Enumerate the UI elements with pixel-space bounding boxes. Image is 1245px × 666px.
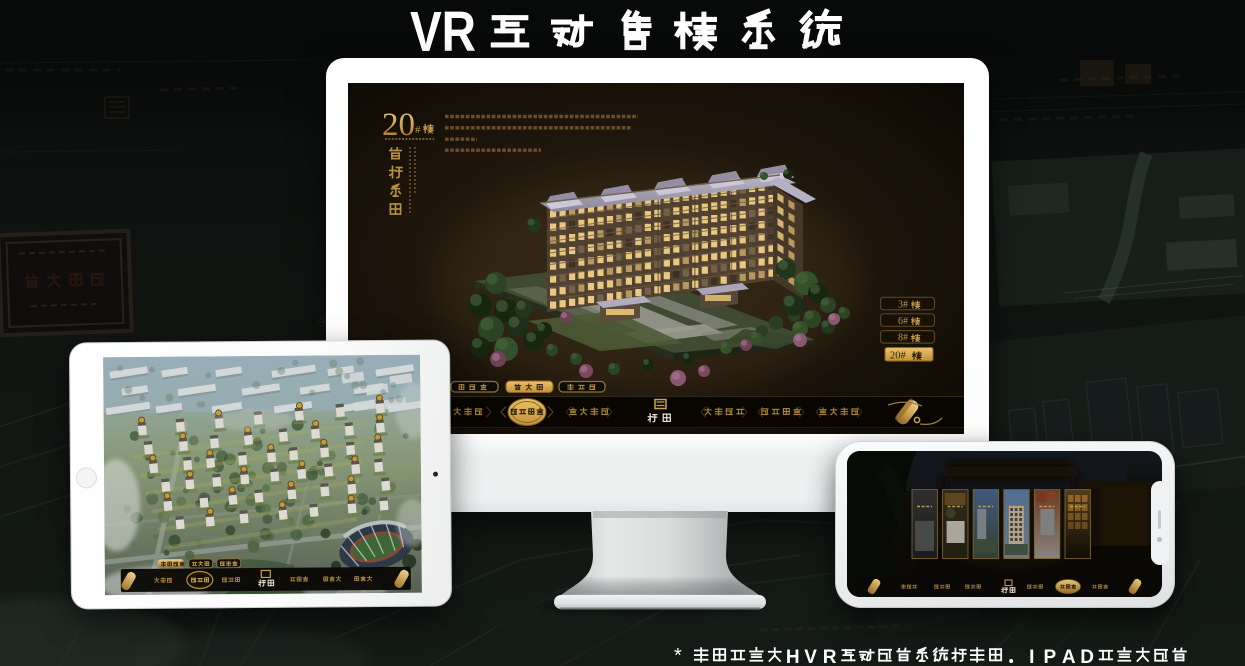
svg-text:6#: 6#	[898, 316, 908, 327]
svg-text:VR: VR	[410, 2, 476, 58]
svg-text:P: P	[1044, 647, 1057, 666]
svg-text:I: I	[1029, 647, 1034, 666]
svg-text:D: D	[1080, 647, 1094, 666]
svg-text:20#: 20#	[890, 351, 907, 362]
svg-text:A: A	[1062, 647, 1076, 666]
svg-text:V: V	[804, 647, 817, 666]
svg-text:#: #	[415, 124, 421, 136]
svg-text:H: H	[786, 647, 800, 666]
svg-text:3#: 3#	[898, 299, 908, 310]
svg-text:8#: 8#	[898, 333, 908, 344]
svg-text:R: R	[823, 647, 837, 666]
svg-text:*: *	[674, 645, 682, 666]
svg-text:20: 20	[382, 107, 415, 143]
